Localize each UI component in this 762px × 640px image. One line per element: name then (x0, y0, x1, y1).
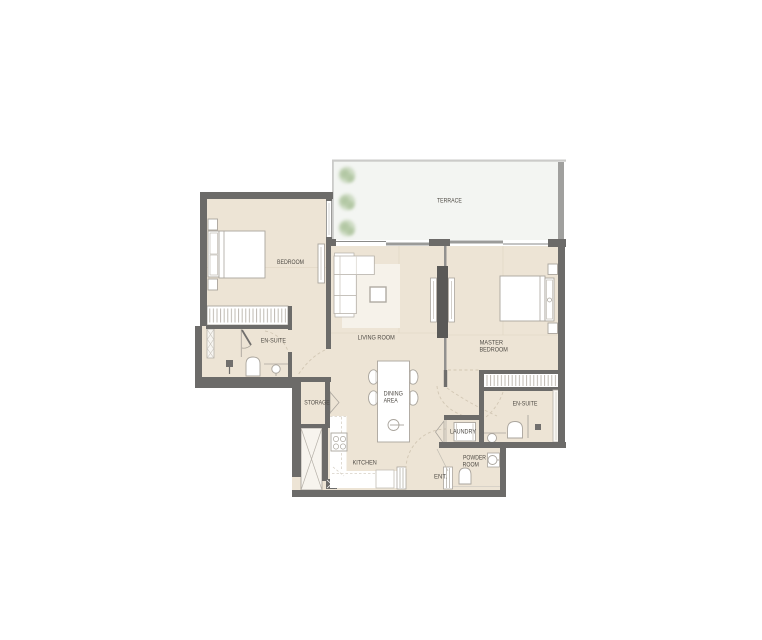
svg-text:LIVING ROOM: LIVING ROOM (358, 335, 395, 342)
svg-text:EN-SUITE: EN-SUITE (261, 338, 286, 345)
svg-text:TERRACE: TERRACE (437, 198, 462, 205)
svg-text:EN-SUITE: EN-SUITE (513, 401, 538, 408)
svg-text:BEDROOM: BEDROOM (277, 259, 304, 266)
svg-text:BEDROOM: BEDROOM (480, 347, 508, 354)
svg-text:AREA: AREA (384, 398, 399, 405)
svg-text:ROOM: ROOM (463, 462, 479, 469)
svg-text:STORAGE: STORAGE (304, 400, 329, 407)
svg-text:POWDER: POWDER (463, 454, 486, 461)
svg-text:KITCHEN: KITCHEN (353, 459, 377, 466)
svg-text:DINING: DINING (384, 391, 403, 398)
svg-text:LAUNDRY: LAUNDRY (450, 429, 476, 436)
svg-text:ENT.: ENT. (434, 474, 447, 481)
